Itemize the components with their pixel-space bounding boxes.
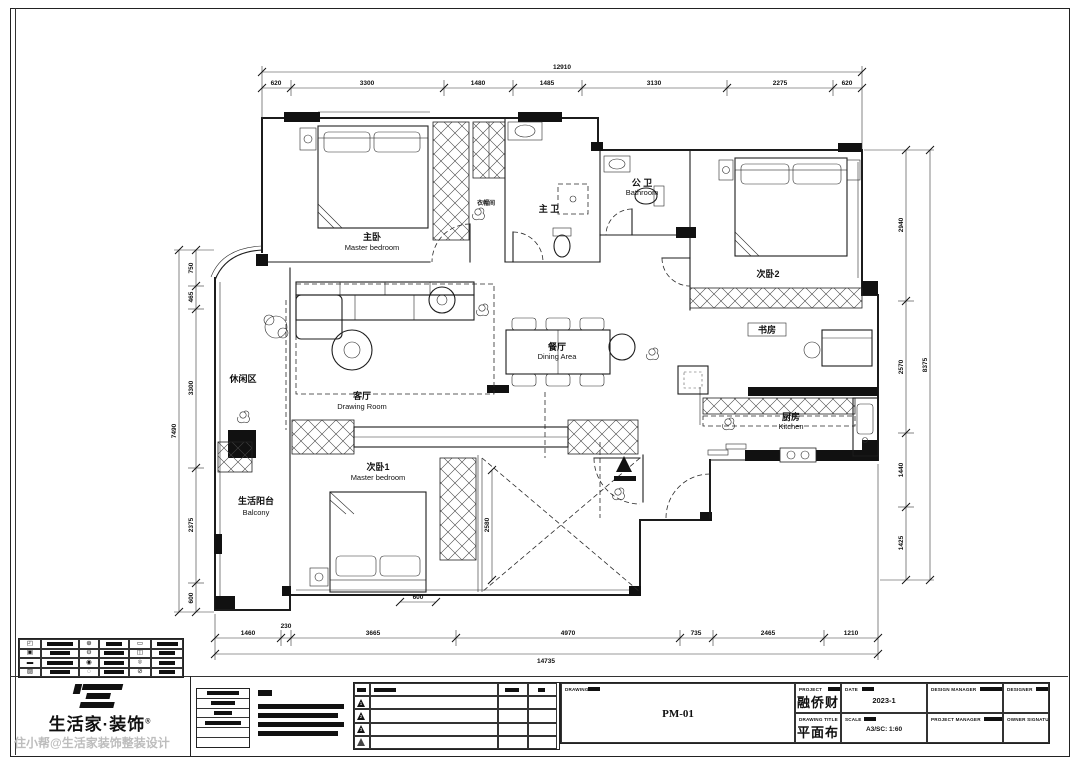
svg-text:7490: 7490 [171,423,178,438]
label-master-zh: 主卧 [363,231,381,242]
legend-entry [41,658,79,668]
label-cloak: 衣帽间 [477,199,495,207]
bedroom2-bed [719,158,860,256]
scale-cell: SCALE A3/SC: 1:60 [841,713,927,743]
legend-entry [151,639,183,649]
notes-block [256,690,346,742]
company-logo-text: 生活家·装饰® [10,710,190,735]
legend-entry [151,658,183,668]
label-bedroom1-zh: 次卧1 [366,461,389,472]
drawing-number-cell: DRAWING PM-01 [561,683,795,743]
svg-text:620: 620 [842,80,853,87]
interior-walls [262,118,745,610]
dim-chain-right: 2940 2570 1440 1425 8375 [864,146,934,584]
legend-entry [99,639,129,649]
label-master-bath: 主 卫 [539,203,560,214]
label-bath-zh: 公 卫 [632,178,653,188]
legend-icon: ⊕ [79,639,99,649]
legend-entry [99,649,129,659]
label-dining-en: Dining Area [538,352,578,361]
bedroom1-bed [310,492,426,592]
label-bedroom2: 次卧2 [756,268,779,279]
svg-text:1485: 1485 [540,80,555,87]
svg-text:735: 735 [691,630,702,637]
dim-chain-top: 12910 620 3300 1480 1485 3130 2275 620 [258,64,866,150]
revision-mark-icon: 3 [357,725,365,733]
legend-icon: ⌾ [129,658,151,668]
revision-table: 1 2 3 [353,682,560,750]
project-manager-cell: PROJECT MANAGER [927,713,1003,743]
label-kitchen-zh: 厨房 [782,411,800,422]
svg-text:3665: 3665 [366,630,381,637]
revision-mark-icon: 1 [357,699,365,707]
label-kitchen-en: Kitchen [778,422,803,431]
label-bath-en: Bathroom [626,188,659,197]
svg-text:12910: 12910 [553,64,571,71]
svg-text:600: 600 [188,592,195,603]
sofa [296,282,494,394]
legend-entry [41,649,79,659]
svg-text:1425: 1425 [898,535,905,550]
legend-icon: ▣ [19,649,41,659]
svg-text:1460: 1460 [241,630,256,637]
svg-text:465: 465 [188,291,195,302]
svg-text:8375: 8375 [922,357,929,372]
label-master-en: Master bedroom [345,243,400,252]
exterior-walls [211,112,878,610]
svg-text:2275: 2275 [773,80,788,87]
entry-arrow-icon [614,456,636,481]
svg-text:2570: 2570 [898,359,905,374]
drawing-number: PM-01 [562,708,794,720]
legend-entry [41,639,79,649]
legend-icon: ▬ [19,658,41,668]
scale-value: A3/SC: 1:60 [842,726,926,733]
door-swings [432,209,746,518]
room-labels: 主卧 Master bedroom 衣帽间 主 卫 公 卫 Bathroom 次… [228,178,803,517]
svg-text:3130: 3130 [647,80,662,87]
svg-text:1440: 1440 [898,462,905,477]
watermark-text: 住小帮@生活家装饰整装设计 [14,734,190,751]
date-cell: DATE 2023-1 [841,683,927,713]
svg-text:620: 620 [271,80,282,87]
legend-icon: ◫ [129,649,151,659]
plant [264,315,288,338]
svg-text:750: 750 [188,262,195,273]
svg-text:1480: 1480 [471,80,486,87]
label-living-zh: 客厅 [352,390,371,401]
legend-icon: ◉ [79,658,99,668]
legend-icon: ⊖ [79,649,99,659]
owner-signature-cell: OWNER SIGNATURE [1003,713,1049,743]
label-study: 书房 [758,324,776,335]
revision-mark-icon: 2 [357,712,365,720]
drawing-title-cell: DRAWING TITLE 平面布置图 [795,713,841,743]
person-figures [238,208,735,500]
company-logo-icon [69,684,135,710]
svg-text:14735: 14735 [537,658,555,665]
svg-text:3300: 3300 [360,80,375,87]
svg-text:2465: 2465 [761,630,776,637]
label-bedroom1-en: Master bedroom [351,473,406,482]
label-balcony-en: Balcony [243,508,270,517]
svg-text:600: 600 [413,594,424,601]
title-block: PROJECT 融侨财徐壹号 A6#1302 DATE 2023-1 DESIG… [560,682,1050,744]
svg-text:1210: 1210 [844,630,859,637]
floor-plan-canvas: 主卧 Master bedroom 衣帽间 主 卫 公 卫 Bathroom 次… [0,0,1080,680]
cabinet-hatching [218,122,862,560]
study-desk [804,330,872,366]
legend-table: ◰ ⊕ ▭ ▣ ⊖ ◫ ▬ ◉ ⌾ ▨ ◌ ⊘ [18,638,184,678]
material-key-box [196,688,250,748]
label-balcony-zh: 生活阳台 [238,495,274,506]
drawing-title: 平面布置图 [796,722,840,743]
svg-text:230: 230 [281,623,292,630]
dim-chain-left: 750 465 3300 2375 600 7490 [171,246,214,616]
master-bed [300,126,428,228]
revision-mark-icon [357,738,365,746]
company-logo-box: 生活家·装饰® 住小帮@生活家装饰整装设计 [10,676,191,757]
legend-entry [99,658,129,668]
designer-cell: DESIGNER [1003,683,1049,713]
legend-icon: ▭ [129,639,151,649]
svg-text:2580: 2580 [484,517,491,532]
project-cell: PROJECT 融侨财徐壹号 A6#1302 [795,683,841,713]
svg-text:4970: 4970 [561,630,576,637]
label-dining-zh: 餐厅 [547,341,566,352]
label-living-en: Drawing Room [337,402,387,411]
legend-entry [151,649,183,659]
legend-icon: ◰ [19,639,41,649]
dim-chain-bottom: 1460 230 3665 4970 735 2465 1210 14735 [211,464,882,665]
date-value: 2023-1 [842,696,926,705]
svg-text:2375: 2375 [188,517,195,532]
label-leisure: 休闲区 [228,373,256,384]
project-name: 融侨财徐壹号 A6#1302 [796,692,840,713]
svg-text:2940: 2940 [898,217,905,232]
svg-text:3300: 3300 [188,380,195,395]
design-manager-cell: DESIGN MANAGER [927,683,1003,713]
